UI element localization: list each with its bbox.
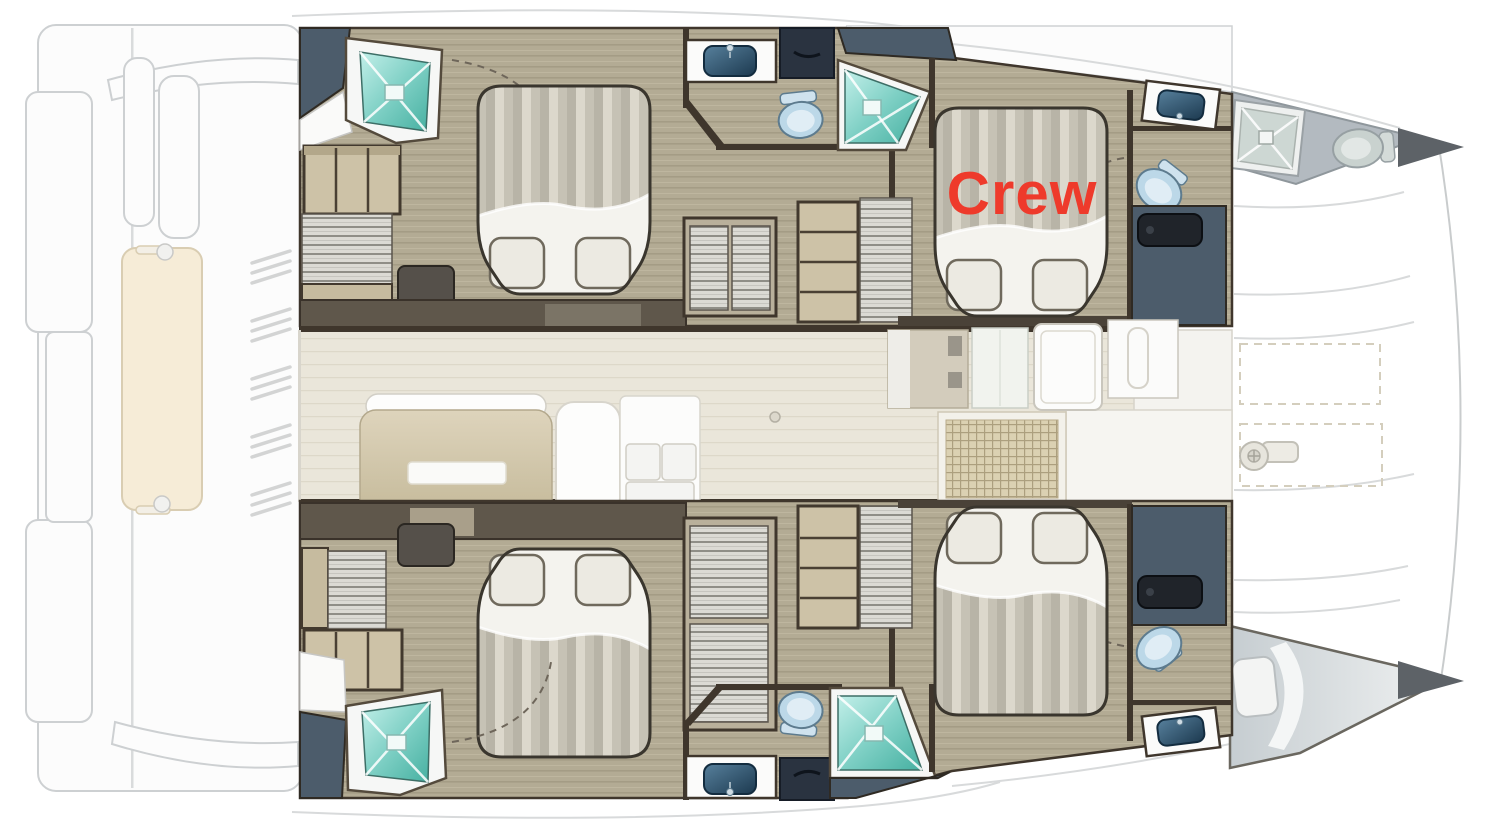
hanging-locker [860,506,912,628]
davit-post [159,76,199,238]
sink-icon [1142,708,1220,757]
starboard-hull-interior [300,500,1232,800]
cabinet [780,28,834,78]
headboard-cabinet [300,503,686,539]
bow-head [1231,92,1420,184]
aft-deck [26,25,302,791]
hatch-box [1138,214,1202,246]
pillow [1231,656,1279,718]
hanging-locker [328,551,386,629]
starboard-transom-step [26,520,92,722]
cabinet [780,758,834,800]
transom-locker [46,332,92,522]
shower-icon [346,38,442,143]
bow-berth [1230,626,1448,768]
port-bow-tip [1398,128,1464,167]
catamaran-floor-plan: Crew [0,0,1500,827]
sink-icon [686,40,776,82]
hanging-locker [302,214,392,284]
drawer [398,524,454,566]
hanging-locker [684,218,776,316]
windlass-icon [1240,442,1298,470]
shower-icon [1231,100,1305,176]
starboard-bow-tip [1398,661,1464,699]
davit-post [124,58,154,226]
salon [298,320,1232,518]
grid-hatch [938,412,1066,506]
double-bed [478,86,650,294]
floor-fitting [770,412,780,422]
sink-icon [1142,81,1220,130]
forestay-line [1438,140,1461,686]
galley-counter [1066,410,1232,508]
hatch-box [1138,576,1202,608]
settee [556,396,700,518]
double-bed [935,507,1107,715]
galley-unit [888,320,1178,410]
crew-label: Crew [947,160,1098,227]
wardrobe-shelves [798,202,858,322]
wardrobe-shelves [304,146,400,214]
port-transom-step [26,92,92,332]
hanging-locker [684,518,776,730]
salon-table [360,394,552,518]
trampoline-hatch [1240,344,1380,404]
sink-icon [686,756,776,798]
hanging-locker [860,198,912,322]
corner-panel [300,712,346,798]
wardrobe-shelves [798,506,858,628]
shelf [302,548,328,628]
sun-lounger [122,244,202,514]
shower-icon [346,690,446,795]
open-door [300,652,346,712]
